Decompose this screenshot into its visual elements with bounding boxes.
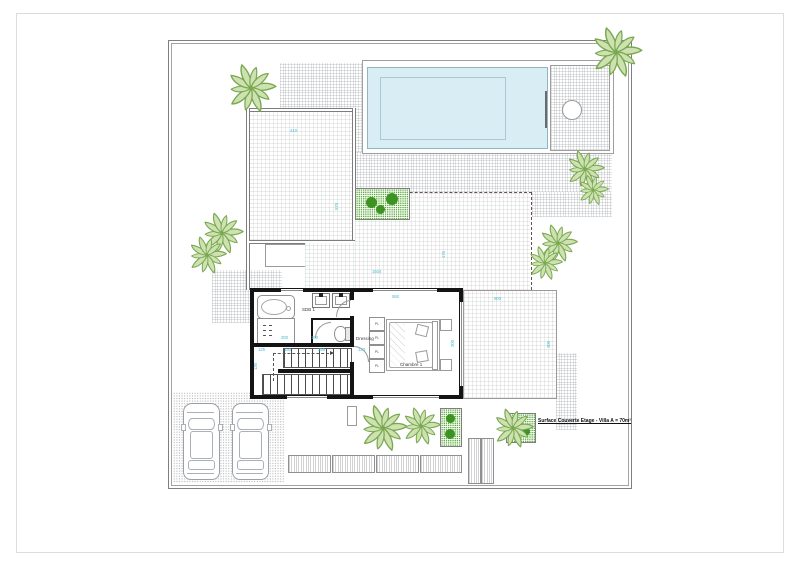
- window: [460, 302, 464, 386]
- stair-direction-line: [273, 353, 274, 381]
- window: [373, 396, 439, 400]
- nightstand: [440, 359, 452, 371]
- palm-tree-icon: [186, 234, 228, 276]
- staircase-lower-flight: [262, 374, 352, 395]
- laundry-cabinet: [257, 318, 295, 344]
- car: [232, 403, 269, 480]
- dimension-label: 500: [494, 296, 501, 301]
- wardrobe-label: PL: [375, 336, 379, 340]
- partition-wall: [350, 316, 354, 346]
- palm-tree-icon: [576, 173, 610, 207]
- planter: [355, 188, 410, 220]
- pergola-slat: [468, 438, 481, 484]
- terrace-main-floor: [305, 243, 355, 290]
- pool: [367, 67, 548, 149]
- room-label-bedroom: Chambre 1: [400, 362, 422, 367]
- palm-tree-icon: [526, 244, 564, 282]
- dimension-label: 300: [546, 341, 551, 348]
- wardrobe-unit: PL: [369, 345, 385, 359]
- dimension-label: 1504: [372, 269, 381, 274]
- room-label-dressing: Dressing: [356, 336, 374, 341]
- palm-tree-icon: [224, 61, 278, 115]
- pergola-slat: [332, 455, 375, 473]
- bed-blanket: [389, 322, 405, 366]
- staircase-divider: [278, 369, 350, 373]
- terrace-upper-left-floor: [249, 111, 352, 240]
- dimension-label: 256: [318, 347, 325, 352]
- dimension-label: 130: [253, 363, 258, 370]
- window: [373, 289, 437, 293]
- terrace-east-floor: [463, 290, 557, 399]
- room-label-bathroom: SDB 1: [302, 307, 315, 312]
- area-note: Surface Couverte Etage - Villa A = 70m²: [538, 418, 631, 424]
- pergola-slat: [420, 455, 462, 473]
- wardrobe-unit: PL: [369, 317, 385, 331]
- dimension-label: 592: [392, 294, 399, 299]
- dimension-label: 175: [441, 251, 446, 258]
- dimension-label: 190: [311, 335, 318, 340]
- pool-platform: [362, 60, 614, 154]
- car: [183, 403, 220, 480]
- partition-wall: [350, 362, 354, 395]
- dimension-label: 120: [358, 347, 365, 352]
- partition-wall: [350, 288, 354, 300]
- terrace-planter-box: [265, 244, 307, 267]
- partition-wall: [250, 343, 354, 347]
- window: [281, 289, 303, 293]
- wardrobe-label: PL: [375, 322, 379, 326]
- dimension-label: 410: [290, 128, 297, 133]
- floor-plan-sheet: SDB 1 PL PL PL PL Dressing Chambre 1 410…: [0, 0, 800, 566]
- stair-direction-arrow: [330, 351, 334, 355]
- wc-wall: [311, 318, 313, 345]
- palm-tree-icon: [588, 24, 644, 80]
- dimension-label: 125: [258, 347, 265, 352]
- pool-inner-line: [380, 77, 506, 140]
- pergola-slat: [288, 455, 331, 473]
- window: [287, 396, 327, 400]
- terrace-wall: [246, 108, 250, 290]
- wardrobe-label: PL: [375, 364, 379, 368]
- wardrobe-unit: PL: [369, 359, 385, 373]
- dimension-label: 300: [450, 340, 455, 347]
- dimension-label: 150: [284, 347, 291, 352]
- bed-headboard: [432, 321, 438, 370]
- wc-wall: [311, 318, 354, 320]
- pergola-slat: [376, 455, 419, 473]
- stair-direction-line: [273, 353, 329, 354]
- palm-tree-icon: [400, 405, 442, 447]
- pool-ladder: [545, 91, 547, 128]
- dimension-label: 300: [281, 335, 288, 340]
- planter: [440, 408, 462, 447]
- palm-tree-icon: [491, 406, 535, 450]
- dimension-label: 570: [334, 203, 339, 210]
- column: [347, 406, 357, 426]
- spa-circle: [562, 100, 582, 120]
- nightstand: [440, 319, 452, 331]
- sink: [312, 293, 330, 308]
- wardrobe-label: PL: [375, 350, 379, 354]
- bathtub: [257, 295, 295, 319]
